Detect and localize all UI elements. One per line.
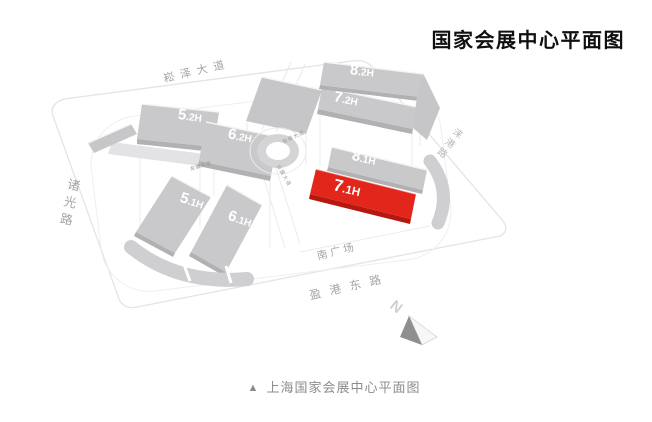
page-title: 国家会展中心平面图 (432, 24, 626, 53)
central-ring-hole (266, 142, 290, 160)
image-caption: ▲上海国家会展中心平面图 (8, 377, 652, 396)
hall-label-8-2h: 8.2H (349, 62, 375, 80)
east-entrance-building-shape (430, 161, 443, 223)
caption-text: 上海国家会展中心平面图 (266, 380, 420, 395)
site-map-canvas (0, 0, 652, 422)
caption-marker: ▲ (248, 382, 260, 394)
north-block-shape (246, 77, 322, 134)
hall-label-5-2h: 5.2H (177, 107, 203, 125)
hall-label-7-2h: 7.2H (333, 89, 360, 109)
page: 国家会展中心平面图 5.2H 6.2H 7.2H 8.2H 8.1H 7.1H … (0, 0, 652, 422)
hall-label-6-2h: 6.2H (227, 126, 253, 145)
